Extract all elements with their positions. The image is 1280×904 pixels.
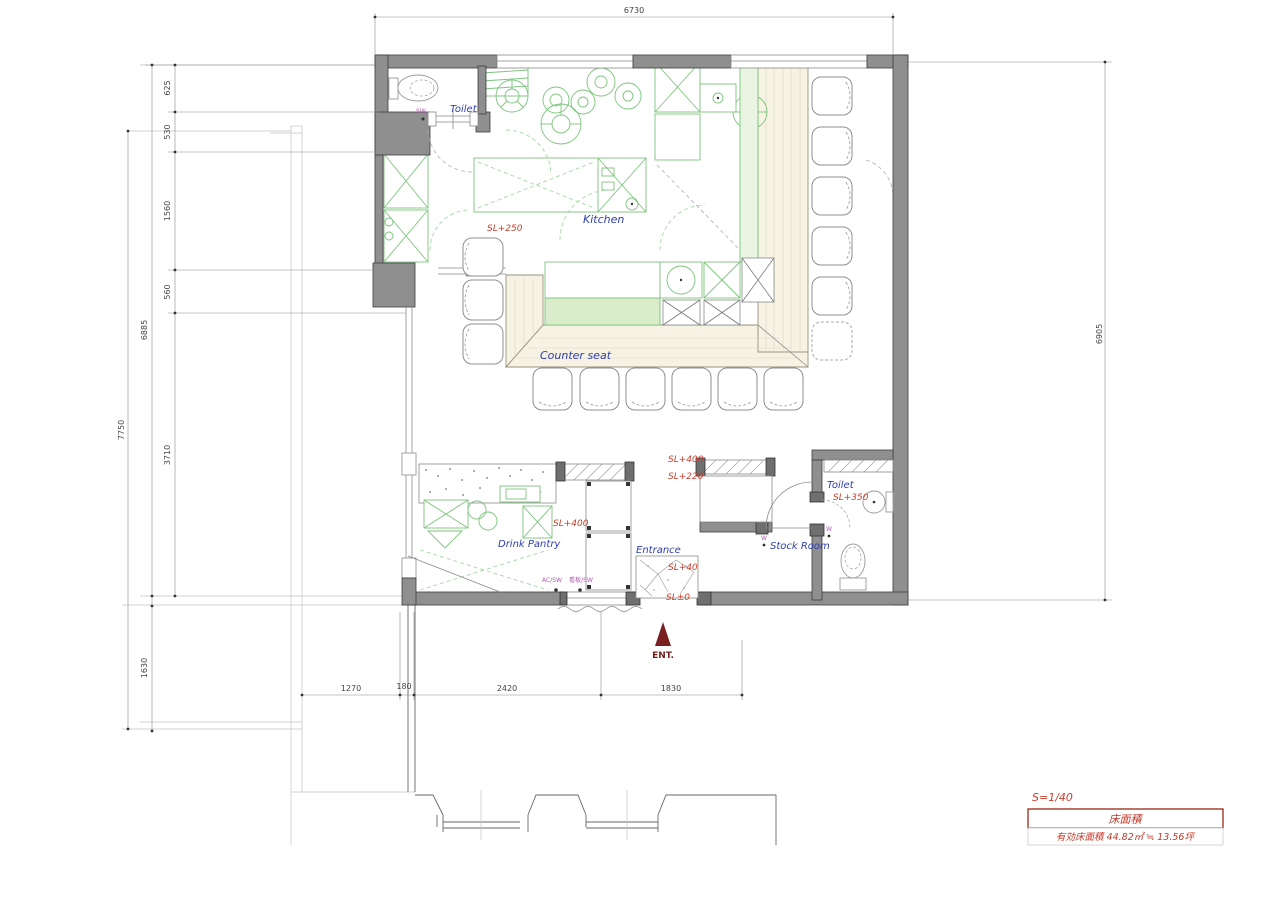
tall-cabinet-1 (586, 481, 631, 531)
sw-mark-ac: AC/SW (542, 577, 562, 584)
counter-stool (463, 238, 503, 276)
counter-stool (580, 368, 619, 410)
sw-mark-toilet1: SW (416, 108, 426, 115)
kitchen-island (474, 158, 646, 212)
counter-stool (764, 368, 803, 410)
dim-right: 6905 (908, 61, 1112, 602)
area-value: 有効床面積 44.82㎡ ≒ 13.56坪 (1056, 831, 1195, 843)
dim-left-530: 530 (163, 124, 172, 139)
toilet2-wc (841, 544, 865, 578)
room-label-entrance: Entrance (636, 545, 681, 556)
dim-bottom-1270: 1270 (341, 684, 361, 693)
back-shelf (740, 62, 758, 262)
level-label-ground: SL±0 (666, 593, 690, 603)
dim-bottom-2420: 2420 (497, 684, 517, 693)
ent-label: ENT. (652, 651, 674, 661)
w-mark-toilet2: W (826, 526, 832, 533)
counter-stool (463, 280, 503, 320)
counter-stool (533, 368, 572, 410)
floor-plan-page: ENT. Toilet Kitchen SL+250 Counter seat … (0, 0, 1280, 904)
counter-stool (672, 368, 711, 410)
window-top-1 (497, 55, 633, 68)
window-top-2 (731, 55, 867, 68)
room-label-kitchen: Kitchen (583, 213, 624, 226)
dim-left: 625 530 1560 560 3710 6885 1630 7750 (117, 64, 406, 733)
level-label-kitchen: SL+250 (487, 224, 523, 234)
entrance-jamb-right (697, 592, 711, 605)
entrance-marker: ENT. (652, 622, 674, 661)
level-label-hall-upper: SL+400 (668, 455, 704, 465)
floor-plan-canvas: ENT. Toilet Kitchen SL+250 Counter seat … (0, 0, 1280, 904)
dim-left-560: 560 (163, 284, 172, 299)
counter-stool (463, 324, 503, 364)
dim-bottom-1830: 1830 (661, 684, 681, 693)
area-title: 床面積 (1109, 813, 1144, 826)
counter-stool (812, 127, 852, 165)
room-label-toilet2: Toilet (827, 480, 855, 491)
level-label-hall-lower: SL+220 (668, 472, 704, 482)
west-cabinets (384, 154, 428, 262)
counter-stool (812, 277, 852, 315)
dim-left-6885: 6885 (140, 320, 149, 340)
scale-note: S=1/40 (1032, 791, 1073, 804)
drink-pantry-area (408, 464, 556, 592)
room-label-drink-pantry: Drink Pantry (498, 539, 561, 550)
lower-counter (545, 258, 774, 325)
storefront-left (402, 307, 416, 605)
dim-left-1630: 1630 (140, 658, 149, 678)
dim-left-1560: 1560 (163, 201, 172, 221)
room-label-stock-room: Stock Room (770, 541, 830, 552)
w-mark-stock: W (761, 535, 767, 542)
counter-stool (812, 77, 852, 115)
level-label-entrance: SL+40 (668, 563, 698, 573)
dim-left-3710: 3710 (163, 445, 172, 465)
room-label-toilet1: Toilet (450, 104, 478, 115)
level-label-toilet2: SL+350 (833, 493, 869, 503)
sw-mark-sign: 看板/SW (569, 576, 593, 584)
level-label-pantry: SL+400 (553, 519, 589, 529)
dim-bottom: 1270 180 2420 1830 (301, 612, 744, 700)
counter-stool (718, 368, 757, 410)
counter-stool (812, 322, 852, 360)
middle-block (700, 476, 772, 522)
counter-stool (626, 368, 665, 410)
toilet1-tank (389, 78, 398, 99)
dim-right-label: 6905 (1095, 324, 1104, 344)
counter-stool (812, 227, 852, 265)
dim-top: 6730 (374, 6, 895, 54)
ent-arrow-icon (655, 622, 671, 646)
dim-top-label: 6730 (624, 6, 644, 15)
dim-bottom-180: 180 (396, 682, 411, 691)
dim-left-7750: 7750 (117, 420, 126, 440)
counter-stool (812, 177, 852, 215)
street-curb (408, 605, 776, 845)
dim-left-625: 625 (163, 80, 172, 95)
room-label-counter-seat: Counter seat (540, 349, 612, 362)
title-block: S=1/40 床面積 有効床面積 44.82㎡ ≒ 13.56坪 (1028, 791, 1223, 845)
